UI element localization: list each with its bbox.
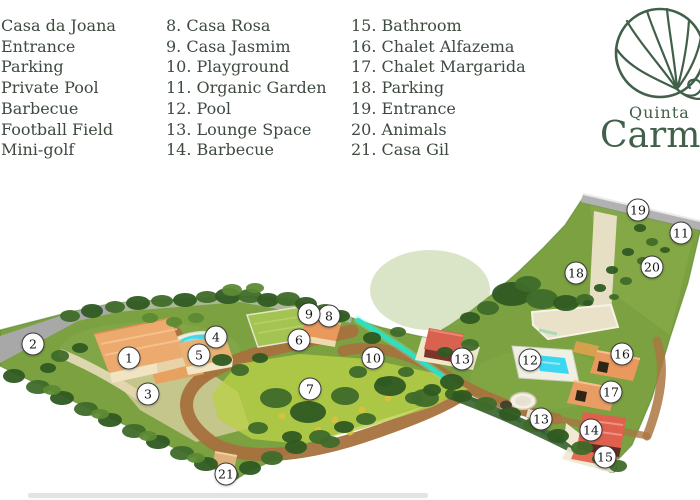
- legend-item: 15. Bathroom: [351, 16, 526, 37]
- legend-column-2: 8. Casa Rosa9. Casa Jasmim10. Playground…: [166, 16, 327, 161]
- legend-item: 21. Casa Gil: [351, 140, 526, 161]
- resort-map-page: 12345678910111213131415161718192021 Casa…: [0, 0, 700, 500]
- legend-item: Casa da Joana: [1, 16, 116, 37]
- legend-item: 18. Parking: [351, 78, 526, 99]
- legend-item: 19. Entrance: [351, 99, 526, 120]
- legend-item: 10. Playground: [166, 57, 327, 78]
- legend-item: Barbecue: [1, 99, 116, 120]
- legend-item: 16. Chalet Alfazema: [351, 37, 526, 58]
- legend-column-1: Casa da JoanaEntranceParkingPrivate Pool…: [1, 16, 116, 161]
- legend-item: Football Field: [1, 120, 116, 141]
- legend-item: 17. Chalet Margarida: [351, 57, 526, 78]
- legend-item: 12. Pool: [166, 99, 327, 120]
- fan-leaf-icon: [600, 4, 700, 104]
- logo-text-carm: Carm: [600, 115, 700, 156]
- legend-item: 11. Organic Garden: [166, 78, 327, 99]
- legend-item: 13. Lounge Space: [166, 120, 327, 141]
- legend-item: Entrance: [1, 37, 116, 58]
- legend-column-3: 15. Bathroom16. Chalet Alfazema17. Chale…: [351, 16, 526, 161]
- legend-item: 9. Casa Jasmim: [166, 37, 327, 58]
- legend-item: Mini-golf: [1, 140, 116, 161]
- main-pool: [512, 346, 579, 382]
- legend-item: Parking: [1, 57, 116, 78]
- bottom-scroll-bar: [28, 493, 428, 498]
- legend-item: 8. Casa Rosa: [166, 16, 327, 37]
- legend-item: 20. Animals: [351, 120, 526, 141]
- legend-item: Private Pool: [1, 78, 116, 99]
- legend-item: 14. Barbecue: [166, 140, 327, 161]
